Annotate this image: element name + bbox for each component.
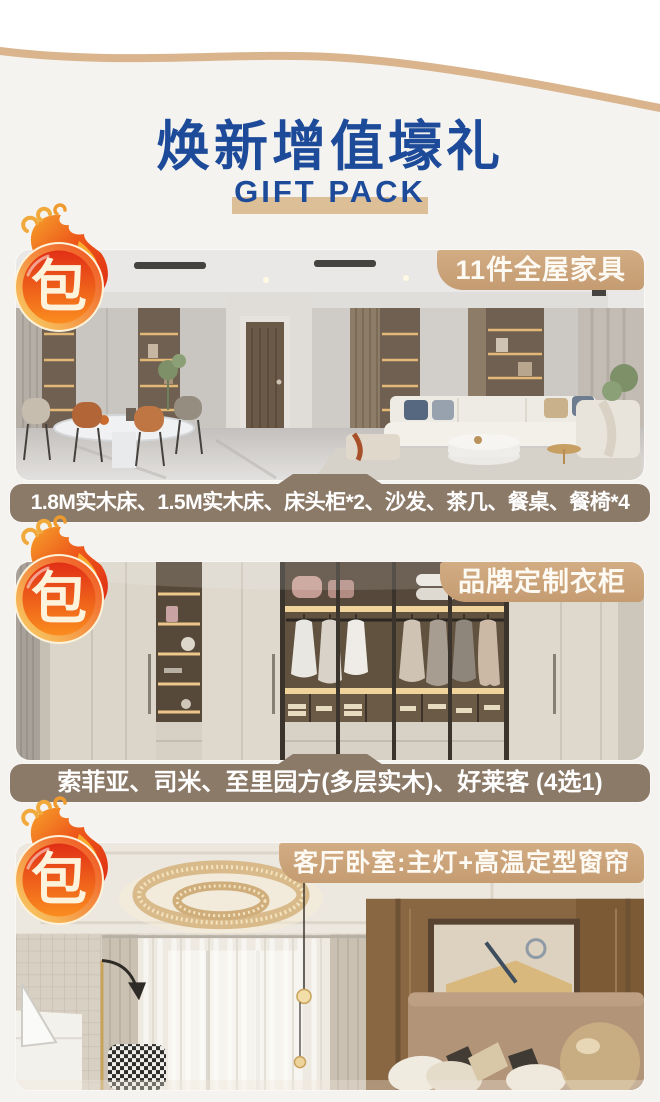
badge-character: 包: [31, 567, 87, 630]
page-subtitle: GIFT PACK: [234, 174, 426, 209]
corner-label: 客厅卧室:主灯+高温定型窗帘: [279, 843, 644, 883]
included-badge: 包: [5, 800, 117, 926]
caption-bar: 1.8M实木床、1.5M实木床、床头柜*2、沙发、茶几、餐桌、餐椅*4: [10, 484, 650, 522]
page-title: 焕新增值壕礼: [0, 102, 660, 181]
corner-label: 品牌定制衣柜: [440, 562, 644, 602]
promo-poster: 焕新增值壕礼 GIFT PACK: [0, 0, 660, 1102]
badge-character: 包: [31, 255, 87, 318]
caption-bar: 索菲亚、司米、至里园方(多层实木)、好莱客 (4选1): [10, 764, 650, 802]
badge-character: 包: [31, 848, 87, 911]
included-badge: 包: [5, 519, 117, 645]
corner-label: 11件全屋家具: [437, 250, 644, 290]
included-badge: 包: [5, 207, 117, 333]
